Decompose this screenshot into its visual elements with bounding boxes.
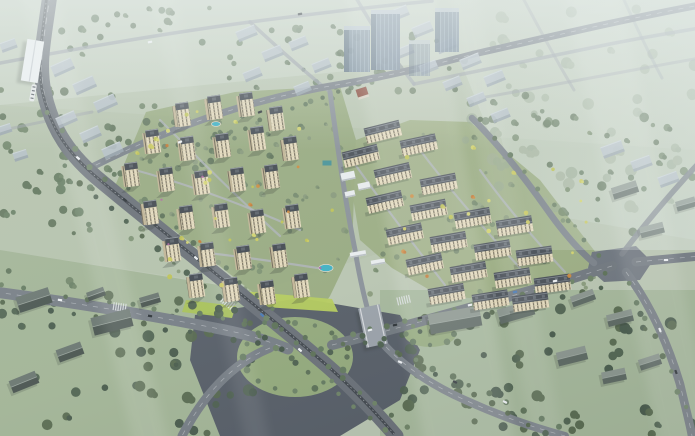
swimming-pool: [212, 122, 221, 127]
rendering-canvas: [0, 0, 695, 436]
aerial-rendering: [0, 0, 695, 436]
sports-court: [323, 161, 332, 166]
